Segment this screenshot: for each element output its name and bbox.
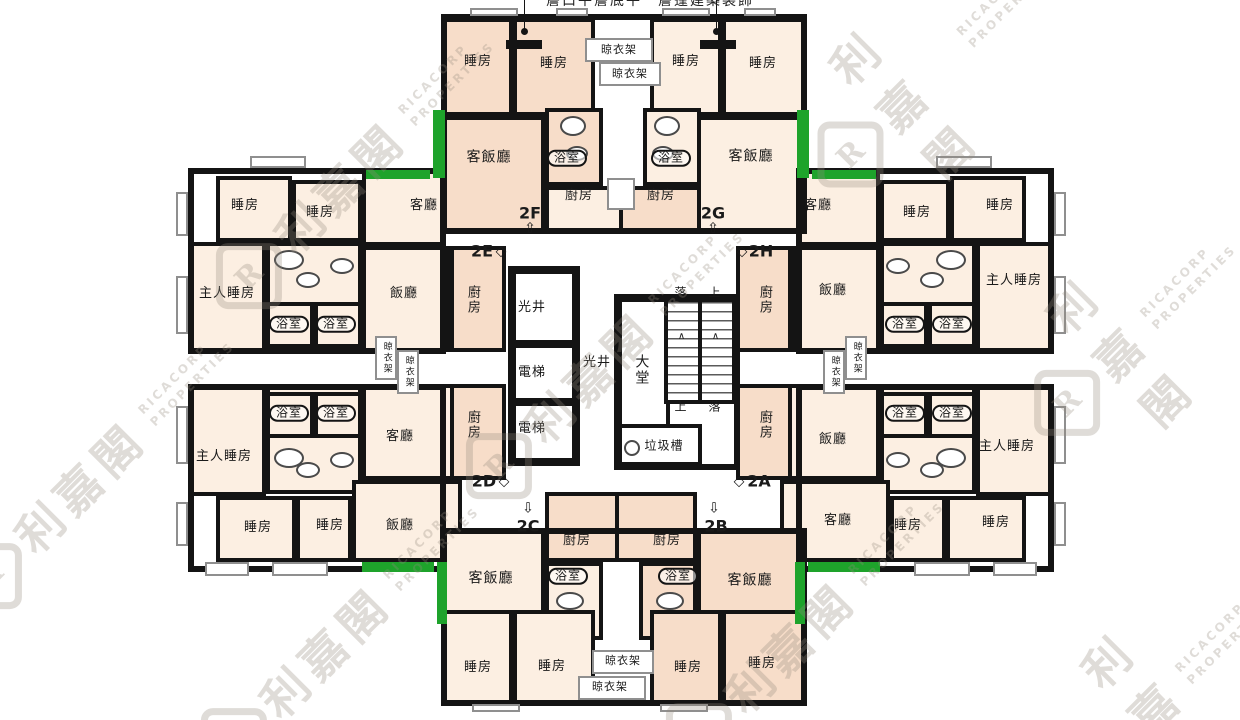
room-label: 飯廳 xyxy=(819,433,847,447)
fixture-2E-2 xyxy=(296,272,320,288)
room-label: 睡房 xyxy=(538,660,566,674)
room-label: 睡房 xyxy=(982,516,1010,530)
room-label: 廚房 xyxy=(647,189,675,203)
room-label: 飯廳 xyxy=(386,519,414,533)
room-label: 睡房 xyxy=(894,519,922,533)
door-arrow-icon-2H: ◇ xyxy=(737,245,748,260)
room-label: 廚房 xyxy=(653,534,681,548)
room-label: 睡房 xyxy=(674,661,702,675)
room-label: 晾衣架 xyxy=(605,655,641,667)
stair-arrow-icon: ∧ xyxy=(678,332,686,343)
door-arrow-icon-2E: ◇ xyxy=(496,245,507,260)
stair-down-label: 落 xyxy=(674,287,687,300)
door-arrow-icon-2C: ⇩ xyxy=(522,502,534,517)
room-label: 浴室 xyxy=(932,405,972,422)
watermark-en-text: RICACORP PROPERTIES xyxy=(1137,232,1239,334)
window-left-4 xyxy=(176,502,188,546)
room-label: 客廳 xyxy=(824,514,852,528)
fixture-2D-3 xyxy=(330,452,354,468)
lightwell-label: 光井 xyxy=(583,356,611,370)
room-label: 主人睡房 xyxy=(199,287,255,301)
window-bottom-1 xyxy=(472,704,520,712)
room-label: 浴室 xyxy=(547,150,587,167)
green-balcony-2E xyxy=(366,170,430,179)
room-label: 浴室 xyxy=(658,568,698,585)
door-arrow-icon-2A: ◇ xyxy=(734,475,745,490)
green-balcony-2G xyxy=(797,110,809,178)
canopy-mark-2 xyxy=(700,40,736,49)
room-label: 晾衣架 xyxy=(851,342,860,375)
room-label: 浴室 xyxy=(885,316,925,333)
green-balcony-2B xyxy=(795,562,805,624)
room-label: 晾衣架 xyxy=(612,68,648,80)
room-label: 晾衣架 xyxy=(601,44,637,56)
room-label: 浴室 xyxy=(316,316,356,333)
window-left-1 xyxy=(176,192,188,236)
bay-window-left-top xyxy=(250,156,306,168)
room-label: 睡房 xyxy=(749,57,777,71)
elevator-label: 電梯 xyxy=(518,422,546,436)
room-label: 浴室 xyxy=(548,568,588,585)
stair-up-label: 上 xyxy=(674,401,687,414)
room-label: 客飯廳 xyxy=(469,572,514,587)
bay-window-right-top xyxy=(936,156,992,168)
watermark-en-text: RICACORP PROPERTIES xyxy=(953,0,1055,52)
unit-label-2A: 2A xyxy=(747,474,771,491)
unit-label-2D: 2D xyxy=(472,474,496,491)
fixture-2A-3 xyxy=(886,452,910,468)
fixture-2A-2 xyxy=(920,462,944,478)
room-label: 客廳 xyxy=(804,199,832,213)
room-label: 睡房 xyxy=(748,657,776,671)
fixture-2H-1 xyxy=(936,250,966,270)
room-label: 廚房 xyxy=(563,534,591,548)
room-label: 浴室 xyxy=(269,316,309,333)
room-label: 客飯廳 xyxy=(467,151,512,166)
room-label: 浴室 xyxy=(316,405,356,422)
canopy-mark-1 xyxy=(506,40,542,49)
green-balcony-2A xyxy=(808,562,880,572)
window-right-3 xyxy=(1054,406,1066,464)
room-label: 浴室 xyxy=(885,405,925,422)
outline-right-wing-lower xyxy=(796,384,1054,572)
door-arrow-icon-2F: ⇧ xyxy=(524,222,536,237)
room-label: 廚房 xyxy=(465,285,479,315)
room-label: 飯廳 xyxy=(819,284,847,298)
room-label: 浴室 xyxy=(269,405,309,422)
window-left-3 xyxy=(176,406,188,464)
fixture-2C-toilet xyxy=(556,592,584,610)
bay-window-left-bottom-2 xyxy=(272,562,328,576)
green-balcony-2D xyxy=(362,562,434,572)
bay-window-right-bottom-2 xyxy=(993,562,1037,576)
door-arrow-icon-2G: ⇧ xyxy=(707,222,719,237)
room-label: 晾衣架 xyxy=(403,356,412,389)
room-label: 睡房 xyxy=(540,57,568,71)
fixture-2F-sink xyxy=(560,116,586,136)
room-label: 主人睡房 xyxy=(986,274,1042,288)
room-label: 主人睡房 xyxy=(196,450,252,464)
room-label: 主人睡房 xyxy=(979,440,1035,454)
unit-label-2H: 2H xyxy=(749,244,774,261)
window-right-4 xyxy=(1054,502,1066,546)
shaft-top-center xyxy=(607,178,635,210)
leader-line-1 xyxy=(524,0,525,30)
room-label: 睡房 xyxy=(231,199,259,213)
watermark-cn-text: 利嘉閣 xyxy=(1065,616,1240,720)
stair-up-label: 上 xyxy=(708,287,721,300)
room-label: 睡房 xyxy=(316,519,344,533)
fixture-2E-3 xyxy=(330,258,354,274)
bay-window-right-bottom-1 xyxy=(914,562,970,576)
room-label: 廚房 xyxy=(465,410,479,440)
room-label: 晾衣架 xyxy=(592,681,628,693)
leader-dot-2 xyxy=(713,28,720,35)
room-label: 客飯廳 xyxy=(729,150,774,165)
door-arrow-icon-2B: ⇩ xyxy=(708,502,720,517)
elevator-label: 電梯 xyxy=(518,366,546,380)
room-label: 客飯廳 xyxy=(728,574,773,589)
room-label: 睡房 xyxy=(464,55,492,69)
room-label: 睡房 xyxy=(986,199,1014,213)
room-label: 晾衣架 xyxy=(829,356,838,389)
unit-label-2C: 2C xyxy=(517,519,540,536)
fixture-2H-3 xyxy=(886,258,910,274)
window-right-1 xyxy=(1054,192,1066,236)
room-label: 浴室 xyxy=(651,150,691,167)
garbage-chute-label: 垃圾槽 xyxy=(644,440,683,453)
fixture-2E-1 xyxy=(274,250,304,270)
green-balcony-2H xyxy=(812,170,876,179)
room-label: 廚房 xyxy=(757,410,771,440)
outline-right-wing-upper xyxy=(796,168,1054,354)
watermark-cn-text: 利嘉閣 xyxy=(0,405,160,566)
ricacorp-logo-icon: R xyxy=(0,543,22,609)
room-label: 睡房 xyxy=(672,55,700,69)
room-label: 客廳 xyxy=(410,199,438,213)
window-bottom-2 xyxy=(660,704,708,712)
fixture-2G-sink xyxy=(654,116,680,136)
room-label: 廚房 xyxy=(565,189,593,203)
green-balcony-2C xyxy=(437,562,447,624)
room-label: 客廳 xyxy=(386,430,414,444)
watermark-en-text: RICACORP PROPERTIES xyxy=(1172,587,1240,689)
stair-arrow-icon: ∧ xyxy=(712,332,720,343)
lightwell-label: 光井 xyxy=(518,301,546,315)
room-label: 浴室 xyxy=(932,316,972,333)
top-annotation: 簷口平簷底平 簷篷建築裝飾 xyxy=(546,0,754,10)
fixture-2H-2 xyxy=(920,272,944,288)
fixture-garbage-chute xyxy=(624,440,640,456)
window-right-2 xyxy=(1054,276,1066,334)
room-label: 睡房 xyxy=(306,206,334,220)
green-balcony-2F xyxy=(433,110,445,178)
door-arrow-icon-2D: ◇ xyxy=(499,475,510,490)
bay-window-left-bottom-1 xyxy=(205,562,249,576)
window-left-2 xyxy=(176,276,188,334)
room-label: 廚房 xyxy=(757,285,771,315)
lobby-label: 大堂 xyxy=(634,354,649,386)
room-label: 睡房 xyxy=(903,206,931,220)
fixture-2B-toilet xyxy=(656,592,684,610)
ricacorp-logo-icon: R xyxy=(201,708,267,720)
stair-down-label: 落 xyxy=(708,401,721,414)
unit-label-2E: 2E xyxy=(471,244,493,261)
watermark-cn-text: 利嘉閣 xyxy=(244,570,405,720)
fixture-2D-2 xyxy=(296,462,320,478)
window-top-1 xyxy=(470,8,518,16)
room-label: 睡房 xyxy=(464,661,492,675)
room-label: 晾衣架 xyxy=(381,342,390,375)
floorplan-canvas: 睡房睡房睡房睡房晾衣架晾衣架客飯廳客飯廳浴室浴室廚房廚房2F⇧2G⇧2E◇2H◇… xyxy=(0,0,1240,720)
watermark-cn-text: 利嘉閣 xyxy=(814,0,1025,191)
unit-label-2B: 2B xyxy=(704,519,727,536)
room-label: 睡房 xyxy=(244,521,272,535)
leader-dot-1 xyxy=(521,28,528,35)
room-label: 飯廳 xyxy=(390,287,418,301)
